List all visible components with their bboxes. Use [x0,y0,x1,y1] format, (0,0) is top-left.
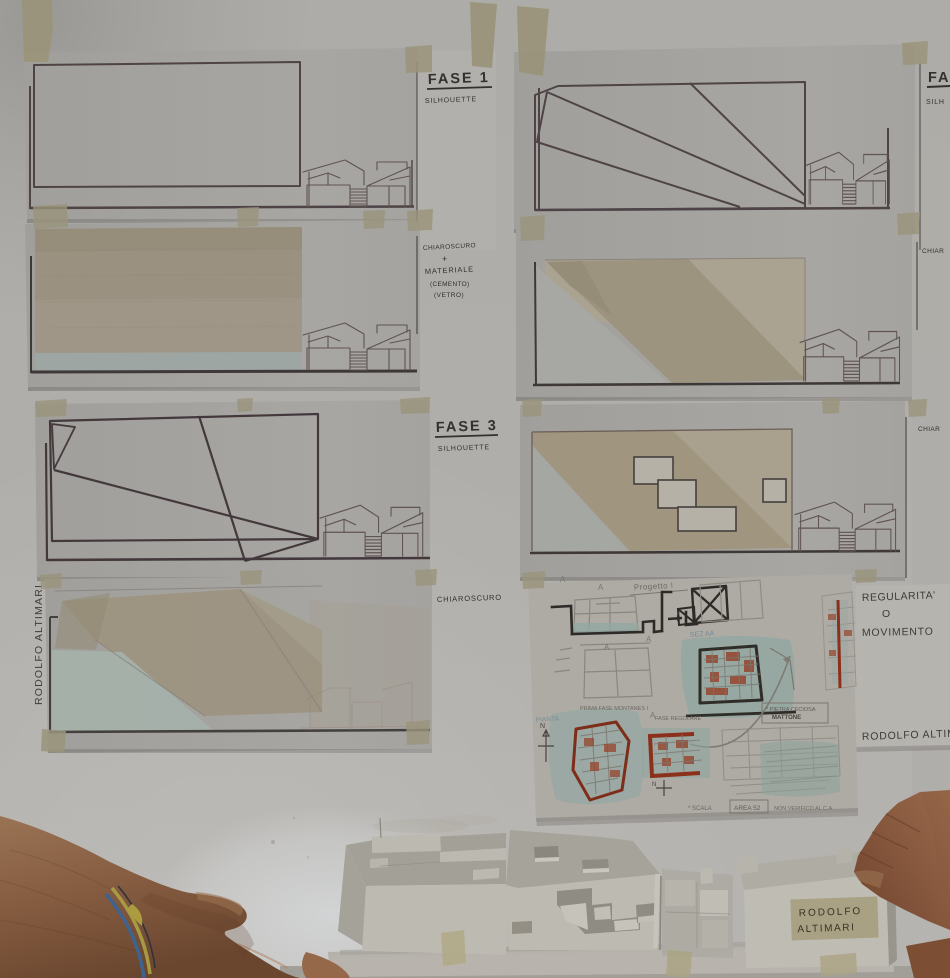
svg-text:FASE REGOLARE: FASE REGOLARE [655,716,701,722]
svg-text:A: A [598,583,604,592]
svg-text:CHIAR: CHIAR [918,426,940,433]
svg-text:NON VERIFICO AL C.A.: NON VERIFICO AL C.A. [774,806,834,812]
svg-text:+: + [442,254,447,264]
svg-text:N: N [540,723,545,730]
svg-text:* SCALA: * SCALA [688,806,712,812]
svg-text:O: O [882,608,890,620]
svg-text:A: A [646,635,652,644]
svg-text:RODOLFO ALTIMARI: RODOLFO ALTIMARI [33,584,45,705]
svg-text:A: A [604,643,610,652]
svg-text:(VETRO): (VETRO) [434,292,464,299]
svg-text:CHIAR: CHIAR [922,248,944,255]
svg-text:FA: FA [928,70,950,86]
svg-text:A: A [560,575,566,584]
svg-text:* PIETRA CECIOSA: * PIETRA CECIOSA [766,707,816,713]
svg-text:AREA 52: AREA 52 [734,805,761,812]
svg-text:RODOLFO: RODOLFO [799,906,863,919]
svg-text:SILH: SILH [926,99,945,106]
svg-text:FASE 3: FASE 3 [436,418,498,436]
svg-text:MOVIMENTO: MOVIMENTO [862,626,934,639]
svg-text:(CEMENTO): (CEMENTO) [430,281,469,288]
svg-text:ALTIMARI: ALTIMARI [797,922,856,935]
svg-text:MATTONE: MATTONE [772,715,801,721]
svg-text:PRIMA FASE MONTANES I: PRIMA FASE MONTANES I [580,706,649,712]
svg-text:FASE 1: FASE 1 [428,70,490,88]
svg-text:N: N [652,782,656,788]
